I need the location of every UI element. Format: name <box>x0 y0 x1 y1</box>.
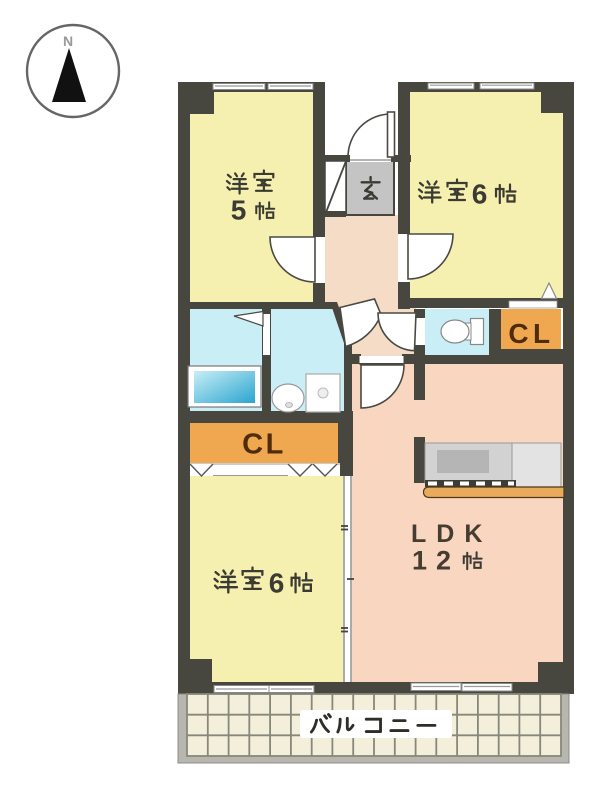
svg-text:N: N <box>63 33 73 49</box>
svg-text:LDK: LDK <box>411 520 492 548</box>
svg-text:6: 6 <box>472 179 488 210</box>
svg-text:6: 6 <box>269 568 285 599</box>
svg-text:12: 12 <box>412 546 460 576</box>
svg-text:CL: CL <box>242 429 286 461</box>
svg-text:5: 5 <box>231 195 247 226</box>
svg-text:CL: CL <box>508 318 554 349</box>
